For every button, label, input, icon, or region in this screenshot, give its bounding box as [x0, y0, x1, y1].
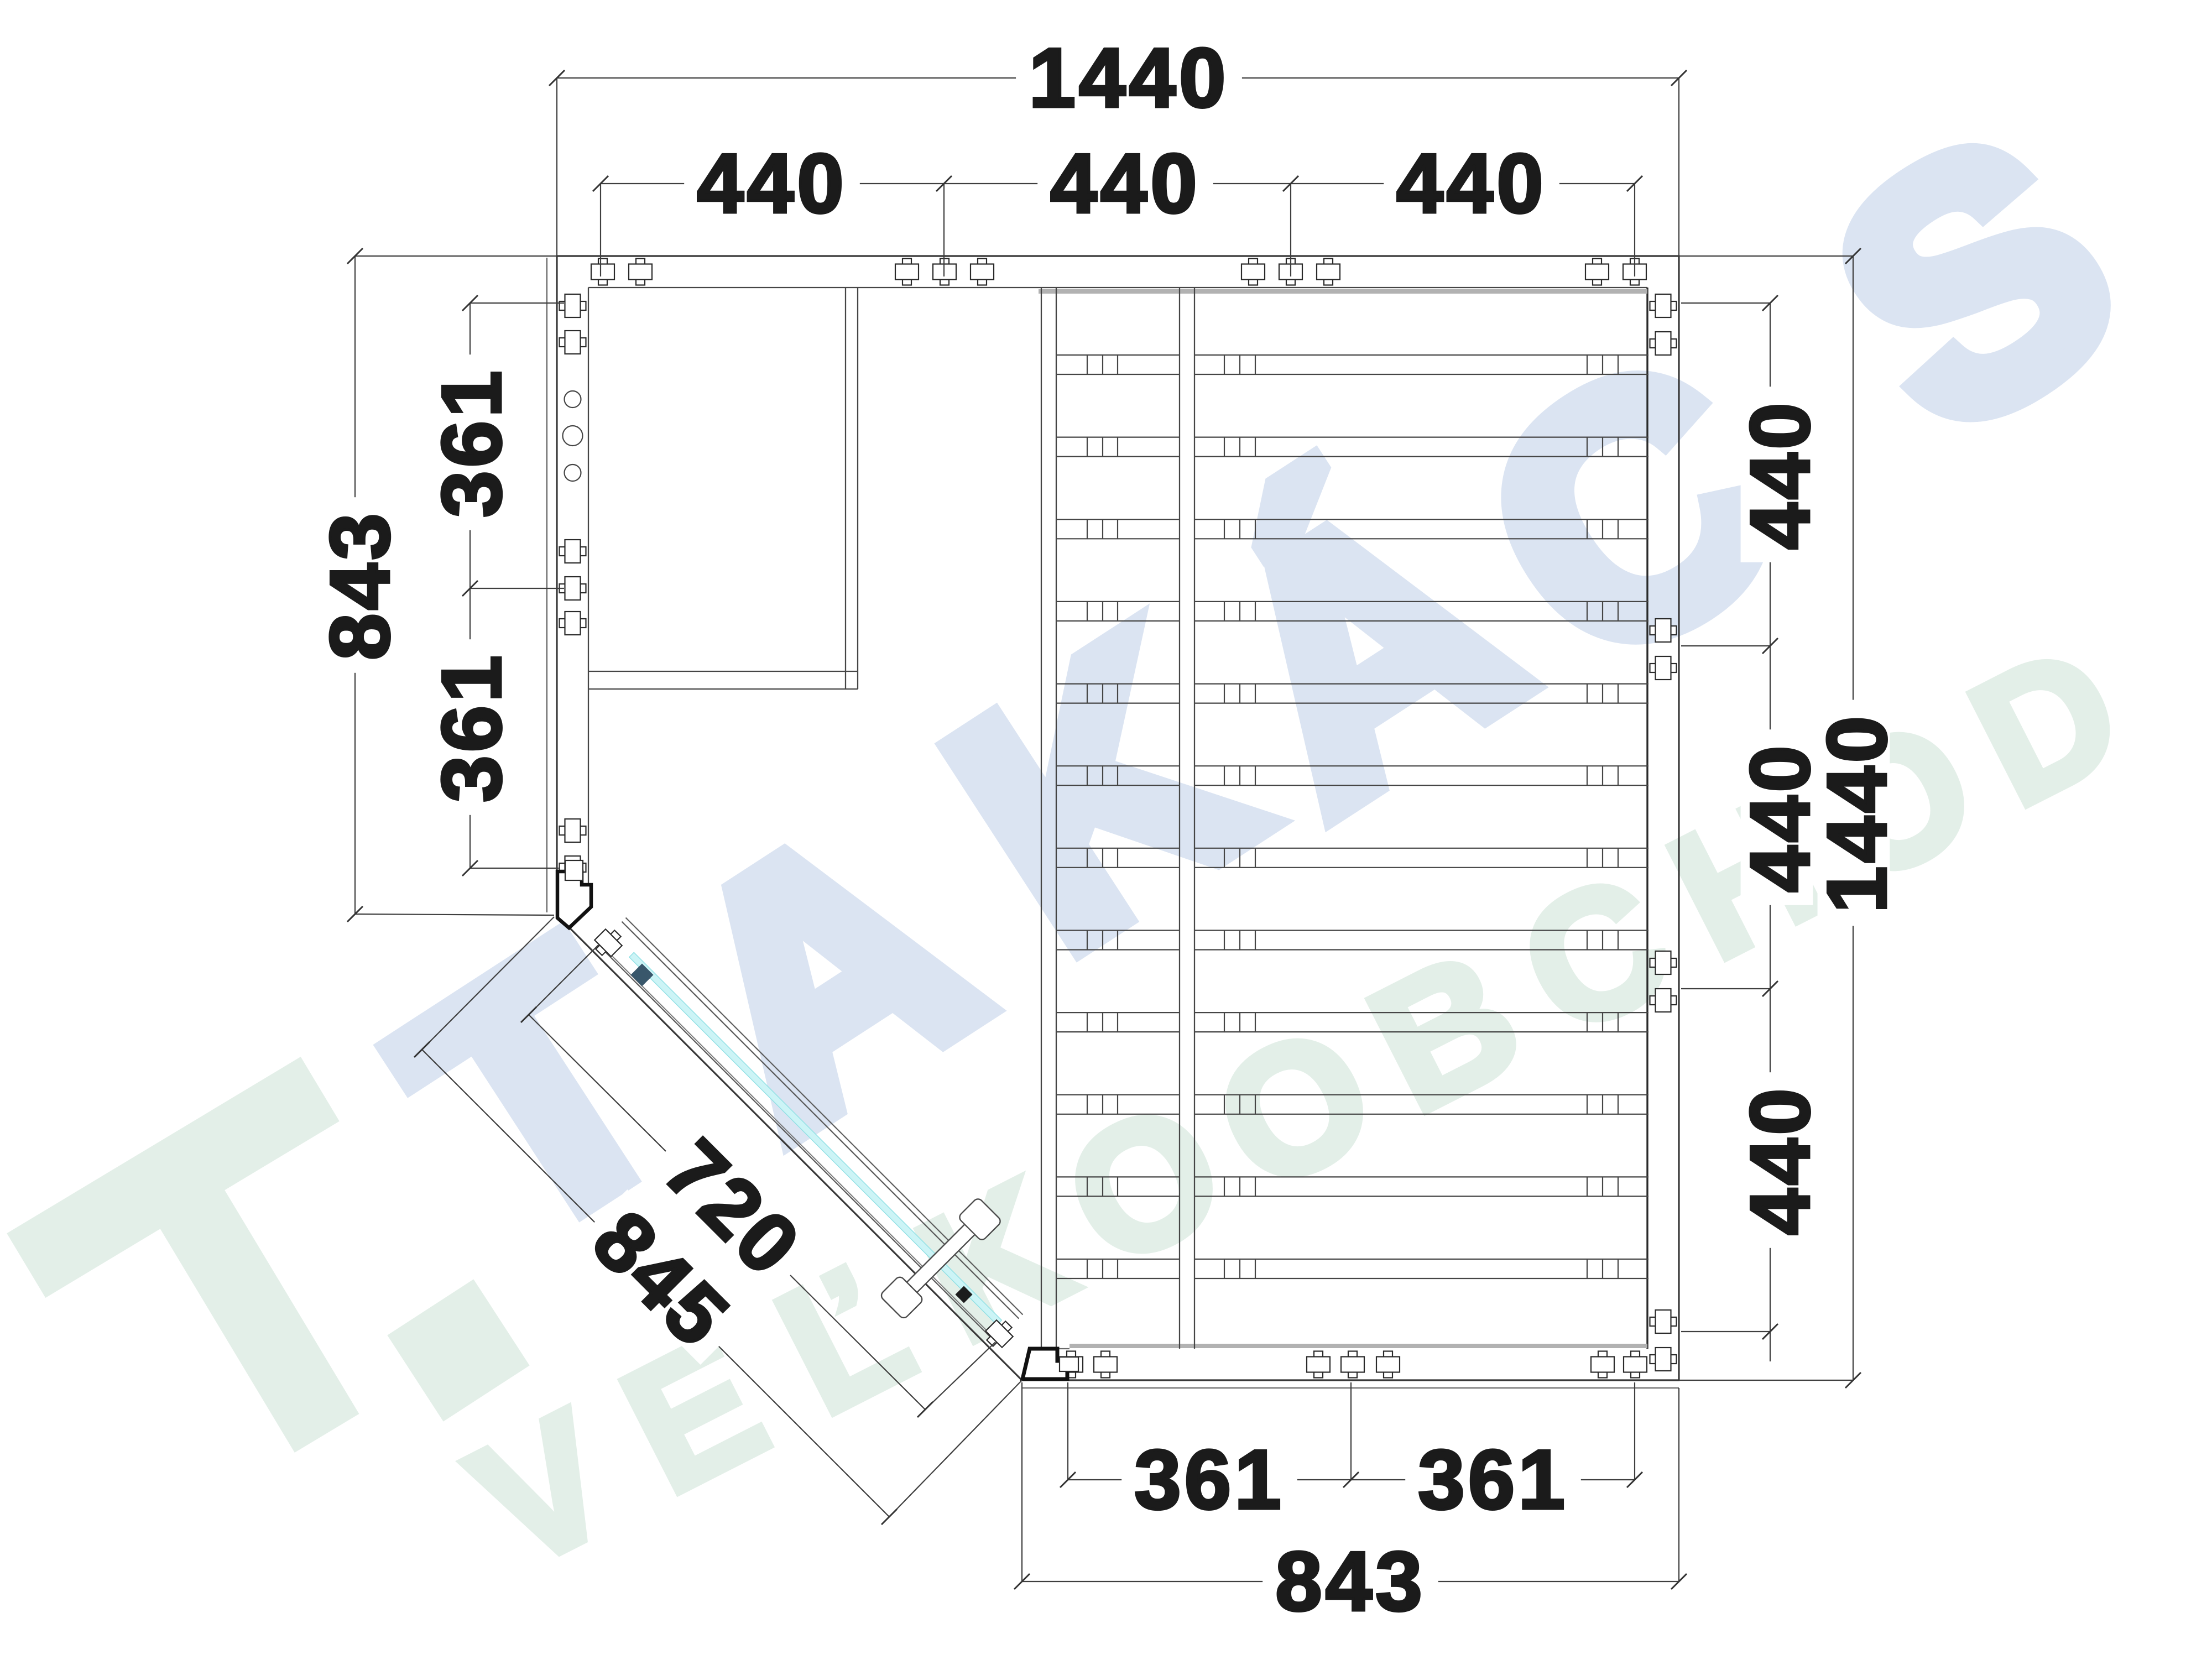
svg-text:843: 843	[313, 510, 407, 660]
svg-text:440: 440	[1733, 1085, 1827, 1235]
svg-text:361: 361	[425, 367, 519, 518]
svg-text:361: 361	[425, 652, 519, 802]
svg-text:440: 440	[697, 137, 847, 231]
svg-text:361: 361	[1134, 1433, 1285, 1527]
svg-text:1440: 1440	[1029, 31, 1229, 125]
svg-text:440: 440	[1733, 399, 1827, 550]
svg-text:440: 440	[1396, 137, 1547, 231]
svg-text:440: 440	[1050, 137, 1201, 231]
svg-text:V: V	[444, 1373, 643, 1607]
svg-text:1440: 1440	[1810, 713, 1904, 913]
svg-text:843: 843	[1275, 1534, 1426, 1629]
svg-text:S: S	[1774, 59, 2174, 505]
svg-text:361: 361	[1418, 1433, 1568, 1527]
